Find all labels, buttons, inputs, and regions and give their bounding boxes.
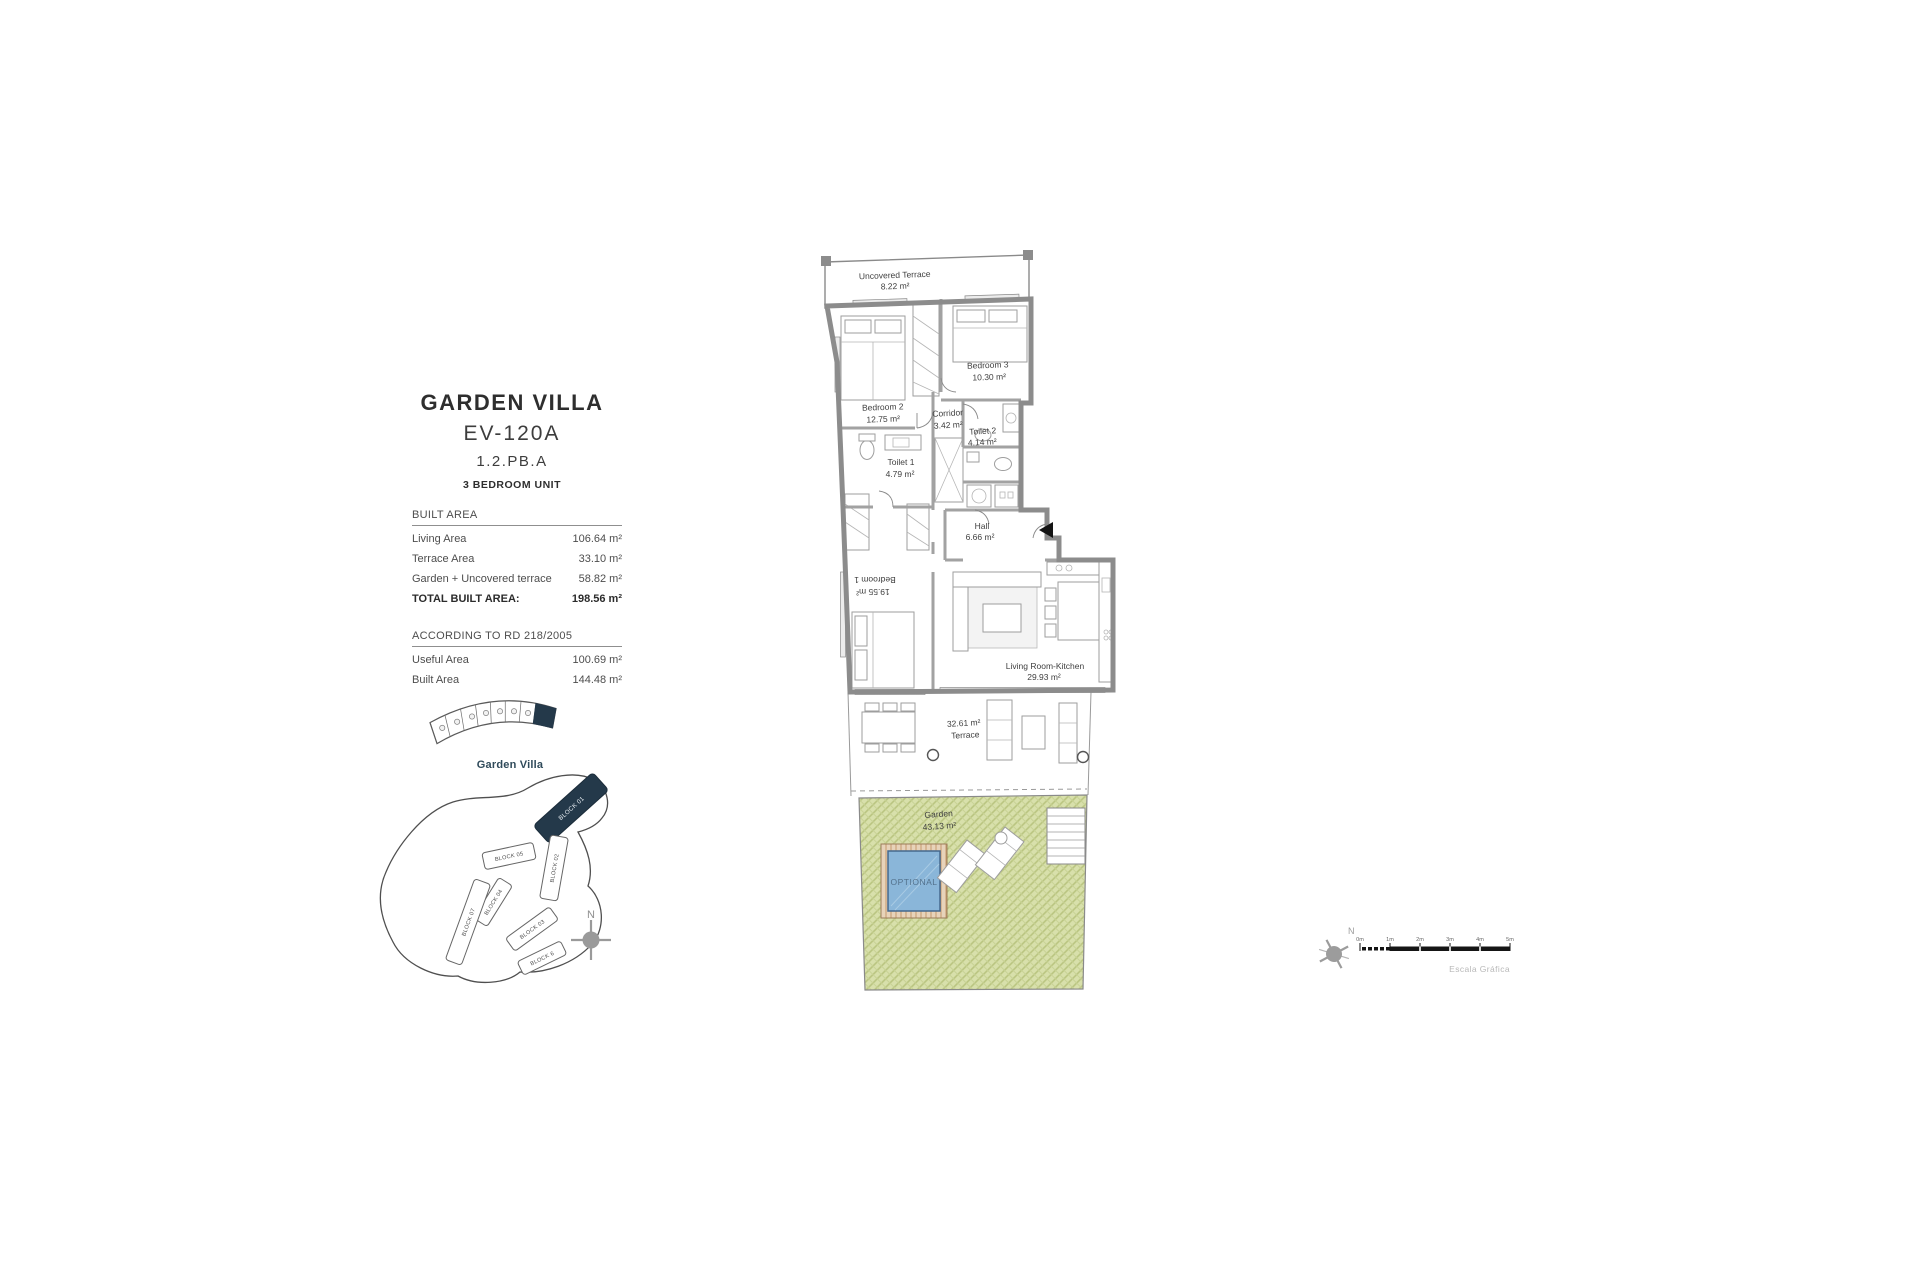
- rd-header: ACCORDING TO RD 218/2005: [412, 630, 622, 647]
- scale-tick: 2m: [1416, 937, 1424, 943]
- room-area-toilet-2: 4.14 m²: [968, 436, 997, 448]
- unit-code: EV-120A: [392, 422, 632, 446]
- room-name-garden: Garden: [924, 808, 953, 820]
- pool-optional-label: OPTIONAL: [891, 877, 938, 887]
- page-title: GARDEN VILLA: [392, 390, 632, 416]
- room-name-bedroom-1: Bedroom 1: [854, 575, 896, 585]
- room-area-terrace: 32.61 m²: [947, 717, 981, 729]
- room-name-toilet-1: Toilet 1: [888, 457, 915, 467]
- room-area-corridor: 3.42 m²: [934, 419, 963, 431]
- scale-caption: Escala Gráfica: [1449, 964, 1510, 974]
- scale-tick: 3m: [1446, 937, 1454, 943]
- site-plan: BLOCK 01 BLOCK 02 BLOCK 05 BLOCK 04 BLOC…: [358, 772, 628, 1002]
- row-value: 33.10 m²: [579, 553, 622, 565]
- table-row: Living Area 106.64 m²: [412, 529, 622, 549]
- room-name-living-kitchen: Living Room-Kitchen: [1006, 661, 1085, 671]
- room-area-bedroom-1: 19.55 m²: [856, 587, 890, 597]
- graphic-scale: 0m 1m 2m 3m 4m 5m: [1356, 937, 1514, 951]
- room-area-uncovered-terrace: 8.22 m²: [881, 280, 910, 291]
- scale-tick: 5m: [1506, 937, 1514, 943]
- room-area-hall: 6.66 m²: [966, 532, 995, 542]
- title-block: GARDEN VILLA EV-120A 1.2.PB.A 3 BEDROOM …: [392, 390, 632, 491]
- room-name-terrace: Terrace: [951, 729, 980, 740]
- pool: OPTIONAL: [881, 844, 947, 918]
- floor-plan: OPTIONAL: [815, 242, 1165, 1002]
- row-value: 144.48 m²: [572, 674, 622, 686]
- row-label: Terrace Area: [412, 553, 474, 565]
- key-plan: [423, 684, 563, 756]
- scale-bar: N 0m 1m 2m 3m 4m 5m Escala Gráfica: [1310, 920, 1530, 1000]
- total-value: 198.56 m²: [572, 593, 622, 605]
- scale-tick: 4m: [1476, 937, 1484, 943]
- north-label: N: [587, 909, 595, 921]
- total-label: TOTAL BUILT AREA:: [412, 593, 520, 605]
- room-area-bedroom-2: 12.75 m²: [866, 413, 900, 424]
- keyplan-label: Garden Villa: [450, 759, 570, 771]
- room-name-toilet-2: Toilet 2: [969, 425, 997, 436]
- north-icon: [1312, 932, 1355, 975]
- room-name-hall: Hall: [975, 521, 990, 531]
- room-area-living-kitchen: 29.93 m²: [1027, 672, 1061, 682]
- row-value: 106.64 m²: [572, 533, 622, 545]
- north-label: N: [1348, 926, 1355, 936]
- rd-table: ACCORDING TO RD 218/2005 Useful Area 100…: [412, 630, 622, 690]
- row-label: Garden + Uncovered terrace: [412, 573, 552, 585]
- table-row: Useful Area 100.69 m²: [412, 650, 622, 670]
- table-row: Garden + Uncovered terrace 58.82 m²: [412, 569, 622, 589]
- room-name-corridor: Corridor: [932, 407, 963, 419]
- table-row-total: TOTAL BUILT AREA: 198.56 m²: [412, 589, 622, 609]
- room-area-toilet-1: 4.79 m²: [886, 469, 915, 479]
- page: { "panel": { "title": "GARDEN VILLA", "c…: [0, 0, 1920, 1280]
- row-value: 100.69 m²: [572, 654, 622, 666]
- room-name-bedroom-2: Bedroom 2: [862, 401, 904, 412]
- scale-tick: 1m: [1386, 937, 1394, 943]
- row-value: 58.82 m²: [579, 573, 622, 585]
- row-label: Useful Area: [412, 654, 469, 666]
- garden-stairs: [1047, 808, 1085, 864]
- row-label: Living Area: [412, 533, 466, 545]
- room-name-bedroom-3: Bedroom 3: [967, 359, 1009, 370]
- unit-ref: 1.2.PB.A: [392, 453, 632, 470]
- built-area-table: BUILT AREA Living Area 106.64 m² Terrace…: [412, 509, 622, 609]
- unit-type: 3 BEDROOM UNIT: [392, 479, 632, 491]
- table-row: Terrace Area 33.10 m²: [412, 549, 622, 569]
- room-area-bedroom-3: 10.30 m²: [972, 371, 1006, 382]
- scale-tick: 0m: [1356, 937, 1364, 943]
- built-area-header: BUILT AREA: [412, 509, 622, 526]
